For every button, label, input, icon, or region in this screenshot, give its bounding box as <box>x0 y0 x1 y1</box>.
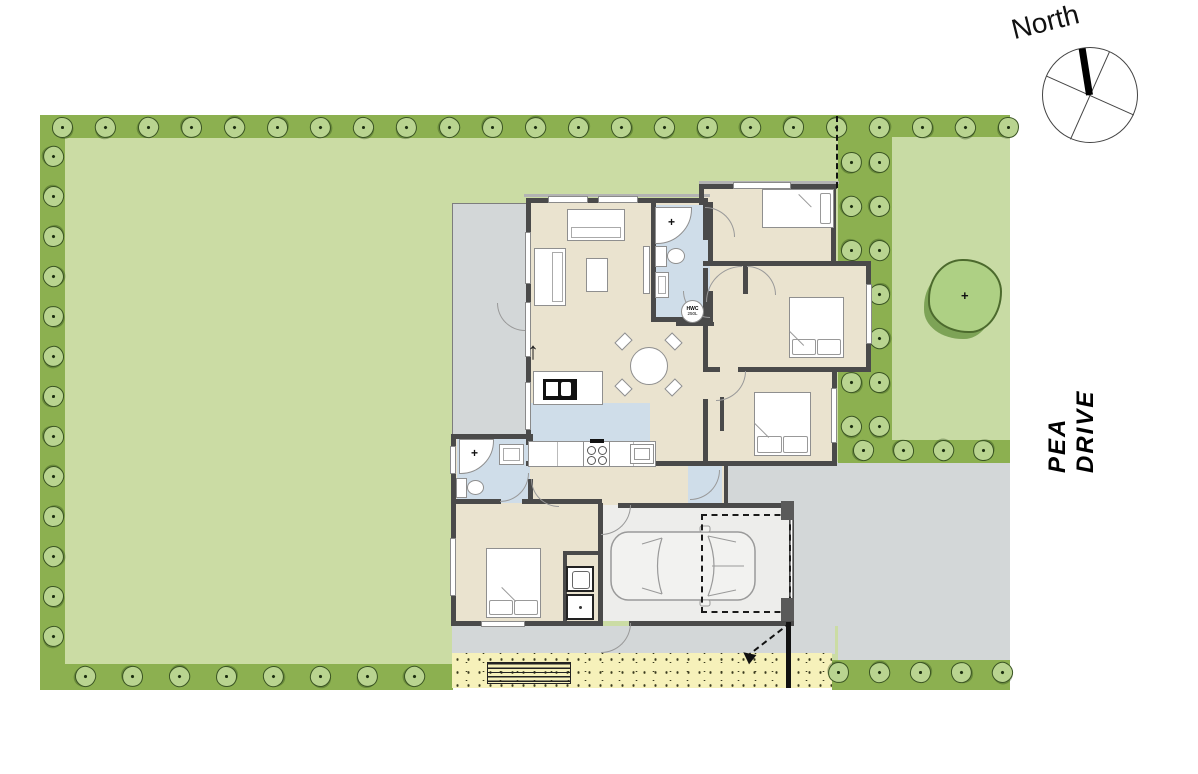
garage-door-jamb-bottom <box>781 598 794 621</box>
bed-double-bedroom4 <box>486 548 541 618</box>
sofa-three-seat <box>567 209 625 241</box>
dryer <box>566 594 594 620</box>
wall-bath2-bottom-a <box>451 499 501 504</box>
boundary-dashed-line <box>836 116 838 188</box>
bed-double-bedroom2 <box>789 297 844 358</box>
sofa-two-seat <box>534 248 566 306</box>
window-bed3 <box>831 388 837 443</box>
hwc-capacity: 250L <box>687 312 697 317</box>
window-bed4 <box>450 538 456 596</box>
hedge-bush <box>997 116 1019 138</box>
bed-single <box>762 189 834 228</box>
wall-bed3-wardrobe <box>720 397 724 431</box>
washing-machine <box>566 566 594 592</box>
vanity-bathroom1 <box>655 272 669 298</box>
wall-bed2-step <box>831 261 871 266</box>
window-bath2 <box>450 446 456 474</box>
dining-table <box>630 347 668 385</box>
window-bed4-south <box>481 621 525 627</box>
window-bed2 <box>866 284 872 344</box>
toilet-cistern-bathroom2 <box>456 478 467 498</box>
window-bed1 <box>733 182 791 189</box>
hedge-bush <box>52 117 73 138</box>
shower-mark: + <box>471 446 478 460</box>
tree-center-mark: + <box>961 288 969 303</box>
compass-north-label: North <box>1008 0 1082 46</box>
wall-bed23-b <box>738 367 838 372</box>
hot-water-cylinder: HWC 250L <box>681 300 704 323</box>
wall-bed2-bottom-step <box>834 367 871 372</box>
wall-bath2-bottom-b <box>522 499 602 504</box>
window-living-left-2 <box>525 382 531 430</box>
shower-mark: + <box>668 215 675 229</box>
wall-garage-top <box>618 503 792 508</box>
driveway-grate <box>487 662 571 684</box>
garage-door-jamb-top <box>781 501 794 520</box>
paving-beside-garage <box>790 505 838 626</box>
wall-garage-south <box>629 621 794 626</box>
cabinet-bathroom2 <box>499 444 524 465</box>
cooktop <box>583 441 610 467</box>
bed-double-bedroom3 <box>754 392 811 456</box>
garden-tree: + <box>928 259 1002 333</box>
wall-south-a <box>451 621 603 626</box>
hedge-bush <box>783 117 804 138</box>
wall-nook-right <box>724 461 728 508</box>
site-plan-canvas: + <box>0 0 1198 774</box>
fence-line <box>786 622 791 688</box>
paving-right <box>838 463 1010 660</box>
garage-dashed-zone <box>701 514 791 613</box>
kitchen-sink <box>543 379 577 400</box>
window-living-1 <box>548 196 588 203</box>
kitchen-appliance <box>630 444 654 464</box>
window-living-left-1 <box>525 232 531 284</box>
street-label: PEA DRIVE <box>1044 328 1100 473</box>
coffee-table <box>586 258 608 292</box>
wall-laundry-top <box>563 551 600 555</box>
hedge-bottom-left <box>40 664 453 690</box>
wall-hall-d <box>703 399 708 463</box>
toilet-bowl-bathroom2 <box>467 480 484 495</box>
window-living-2 <box>598 196 638 203</box>
tv-unit <box>643 246 650 294</box>
entry-arrow: ↑ <box>527 338 539 366</box>
toilet-cistern-bathroom1 <box>655 246 667 267</box>
toilet-bowl-bathroom1 <box>667 248 685 264</box>
wall-bed1-bed2-divider <box>703 261 837 266</box>
